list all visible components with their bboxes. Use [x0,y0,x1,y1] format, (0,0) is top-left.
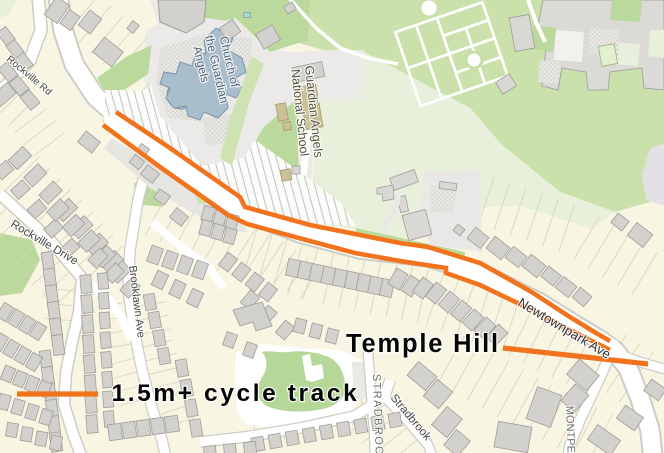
svg-text:1.5m+ cycle track: 1.5m+ cycle track [112,380,360,407]
svg-text:Temple Hill: Temple Hill [346,330,500,358]
svg-text:MONTPE: MONTPE [563,406,577,453]
